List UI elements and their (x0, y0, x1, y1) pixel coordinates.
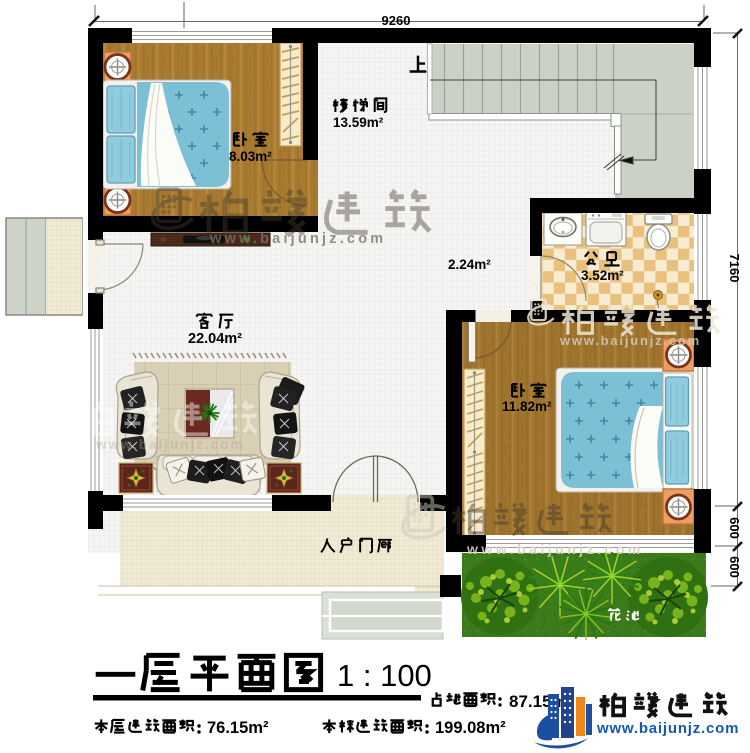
svg-text:www.baijunjz.com: www.baijunjz.com (559, 333, 701, 348)
svg-text:2.24m²: 2.24m² (448, 257, 491, 272)
svg-text:3.52m²: 3.52m² (581, 268, 624, 283)
svg-text:76.15m²: 76.15m² (207, 719, 269, 737)
svg-text:9260: 9260 (382, 13, 411, 28)
svg-text:13.59m²: 13.59m² (333, 115, 384, 130)
svg-text:www.baijunjz.com: www.baijunjz.com (209, 231, 386, 247)
svg-text:600: 600 (727, 556, 742, 578)
svg-text:600: 600 (727, 517, 742, 539)
svg-text:www.baijunjz.com: www.baijunjz.com (596, 720, 739, 737)
svg-text:199.08m²: 199.08m² (435, 719, 506, 737)
svg-text:11.82m²: 11.82m² (502, 399, 552, 414)
svg-text:7160: 7160 (727, 254, 742, 283)
svg-text:22.04m²: 22.04m² (188, 331, 242, 347)
svg-text:8.03m²: 8.03m² (229, 149, 272, 164)
svg-text:www.baijunjz.com: www.baijunjz.com (466, 541, 644, 557)
svg-text:www.baijunjz.com: www.baijunjz.com (95, 437, 245, 452)
svg-text:1 : 100: 1 : 100 (337, 658, 432, 693)
